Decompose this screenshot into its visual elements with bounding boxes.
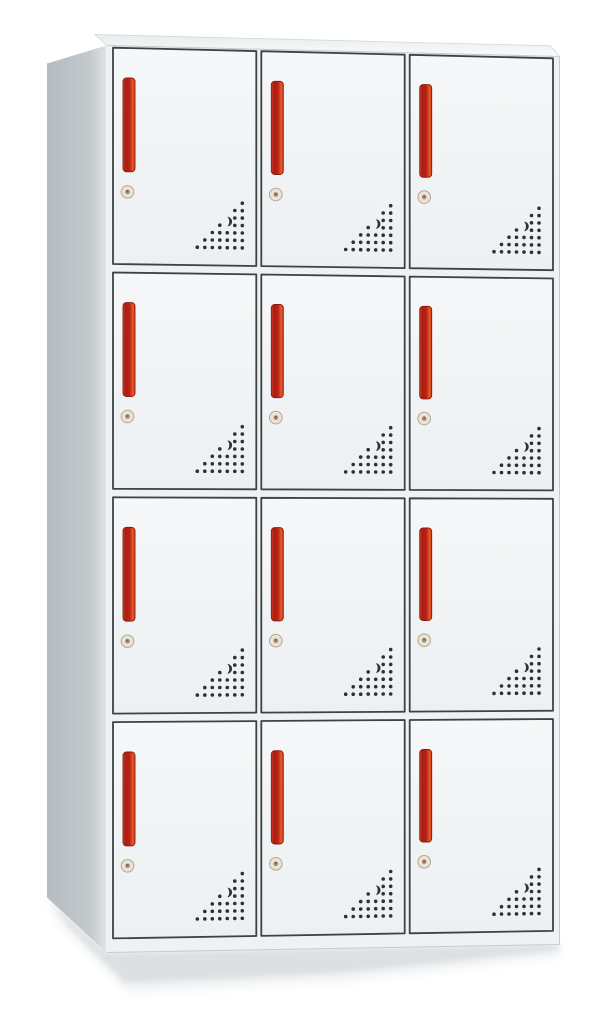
vent-hole (507, 692, 511, 696)
door-handle (271, 528, 283, 621)
vent-hole (381, 907, 385, 911)
vent-hole (389, 204, 393, 208)
door-handle (420, 528, 432, 621)
vent-hole (203, 246, 207, 250)
vent-hole (515, 905, 519, 909)
vent-hole (211, 231, 215, 235)
vent-hole (389, 211, 393, 215)
lock-dot (127, 864, 129, 866)
vent-hole (241, 447, 245, 451)
locker-door-r2c3 (410, 277, 553, 491)
vent-hole (366, 915, 370, 919)
vent-hole (381, 877, 385, 881)
vent-hole (241, 201, 245, 205)
vent-hole (233, 209, 237, 213)
vent-hole (241, 648, 245, 652)
vent-hole (233, 239, 237, 243)
locker-door-r3c1 (113, 497, 256, 713)
vent-hole (530, 662, 534, 666)
locker-cabinet (0, 0, 605, 1009)
door-handle (271, 751, 283, 844)
vent-hole (241, 209, 245, 213)
vent-hole (515, 684, 519, 688)
vent-hole (522, 243, 526, 247)
vent-hole (381, 248, 385, 252)
vent-hole (233, 678, 237, 682)
vent-hole (196, 917, 200, 921)
vent-hole (530, 691, 534, 695)
vent-hole (530, 905, 534, 909)
vent-hole (233, 447, 237, 451)
vent-hole (492, 250, 496, 254)
vent-hole (381, 448, 385, 452)
vent-hole (389, 685, 393, 689)
vent-hole (226, 238, 230, 242)
vent-hole (381, 914, 385, 918)
vent-hole (530, 897, 534, 901)
vent-hole (389, 226, 393, 230)
vent-hole (211, 678, 215, 682)
vent-hole (241, 671, 245, 675)
vent-hole (507, 471, 511, 475)
vent-hole (530, 684, 534, 688)
locker-door-r4c2 (261, 720, 404, 936)
lock-dot (423, 860, 425, 862)
vent-hole (381, 211, 385, 215)
vent-hole (233, 455, 237, 459)
door-handle (271, 304, 283, 397)
vent-hole (241, 872, 245, 876)
vent-hole (233, 917, 237, 921)
vent-hole (226, 686, 230, 690)
vent-hole (381, 670, 385, 674)
vent-hole (530, 434, 534, 438)
vent-hole (366, 463, 370, 467)
vent-hole (515, 897, 519, 901)
vent-hole (218, 238, 222, 242)
vent-hole (381, 892, 385, 896)
vent-hole (233, 224, 237, 228)
vent-hole (537, 464, 541, 468)
vent-hole (374, 248, 378, 252)
locker-door-r4c1 (113, 721, 256, 938)
vent-hole (522, 677, 526, 681)
vent-hole (359, 463, 363, 467)
vent-hole (359, 248, 363, 252)
vent-hole (218, 671, 222, 675)
cabinet-side-panel (47, 46, 107, 953)
vent-hole (389, 470, 393, 474)
vent-hole (515, 449, 519, 453)
vent-hole (211, 469, 215, 473)
vent-hole (389, 441, 393, 445)
vent-hole (530, 214, 534, 218)
door-handle (271, 81, 283, 174)
vent-hole (507, 677, 511, 681)
vent-hole (537, 449, 541, 453)
lock-dot (127, 415, 129, 417)
vent-hole (366, 455, 370, 459)
vent-hole (537, 684, 541, 688)
vent-hole (500, 243, 504, 247)
vent-hole (218, 902, 222, 906)
vent-hole (515, 243, 519, 247)
door-lock (418, 856, 431, 869)
vent-hole (359, 907, 363, 911)
vent-hole (522, 464, 526, 468)
vent-hole (196, 693, 200, 697)
vent-hole (374, 914, 378, 918)
vent-hole (218, 470, 222, 474)
vent-hole (389, 234, 393, 238)
vent-hole (381, 233, 385, 237)
vent-hole (389, 426, 393, 430)
vent-hole (537, 471, 541, 475)
vent-hole (530, 875, 534, 879)
vent-hole (203, 462, 207, 466)
vent-hole (389, 692, 393, 696)
vent-hole (515, 456, 519, 460)
lock-dot (275, 193, 277, 195)
locker-door-r4c3 (410, 719, 553, 933)
vent-hole (241, 224, 245, 228)
vent-hole (515, 464, 519, 468)
vent-hole (522, 897, 526, 901)
vent-hole (522, 471, 526, 475)
vent-hole (389, 877, 393, 881)
vent-hole (389, 907, 393, 911)
vent-hole (226, 909, 230, 913)
vent-hole (389, 677, 393, 681)
vent-hole (203, 238, 207, 242)
vent-hole (359, 233, 363, 237)
door-handle (123, 527, 135, 621)
vent-hole (211, 455, 215, 459)
vent-hole (366, 692, 370, 696)
vent-hole (515, 677, 519, 681)
door-handle (123, 752, 135, 846)
vent-hole (366, 233, 370, 237)
vent-hole (537, 236, 541, 240)
vent-hole (537, 442, 541, 446)
vent-hole (226, 231, 230, 235)
vent-hole (530, 442, 534, 446)
vent-hole (515, 250, 519, 254)
vent-hole (218, 223, 222, 227)
vent-hole (241, 425, 245, 429)
vent-hole (203, 693, 207, 697)
vent-hole (530, 669, 534, 673)
vent-hole (515, 692, 519, 696)
vent-hole (389, 655, 393, 659)
vent-hole (344, 915, 348, 919)
vent-hole (218, 693, 222, 697)
vent-hole (374, 900, 378, 904)
vent-hole (537, 868, 541, 872)
vent-hole (218, 678, 222, 682)
vent-hole (241, 887, 245, 891)
vent-hole (530, 655, 534, 659)
vent-hole (381, 441, 385, 445)
vent-hole (366, 670, 370, 674)
vent-hole (530, 456, 534, 460)
vent-hole (233, 879, 237, 883)
vent-hole (203, 917, 207, 921)
vent-hole (241, 470, 245, 474)
vent-hole (233, 656, 237, 660)
vent-hole (366, 892, 370, 896)
door-lock (121, 860, 134, 873)
vent-hole (515, 228, 519, 232)
vent-hole (241, 462, 245, 466)
vent-hole (500, 463, 504, 467)
vent-hole (374, 470, 378, 474)
vent-hole (218, 246, 222, 250)
vent-hole (218, 231, 222, 235)
vent-hole (389, 219, 393, 223)
vent-hole (233, 894, 237, 898)
vent-hole (530, 449, 534, 453)
vent-hole (359, 915, 363, 919)
vent-hole (507, 456, 511, 460)
vent-hole (241, 693, 245, 697)
vent-hole (389, 241, 393, 245)
vent-hole (381, 455, 385, 459)
vent-hole (233, 470, 237, 474)
vent-hole (381, 470, 385, 474)
vent-hole (351, 907, 355, 911)
vent-hole (226, 470, 230, 474)
vent-hole (530, 890, 534, 894)
vent-hole (507, 905, 511, 909)
vent-hole (226, 462, 230, 466)
vent-hole (522, 684, 526, 688)
vent-hole (218, 462, 222, 466)
vent-hole (203, 910, 207, 914)
vent-hole (515, 912, 519, 916)
door-lock (418, 191, 431, 204)
vent-hole (507, 250, 511, 254)
door-lock (270, 858, 283, 871)
vent-hole (233, 432, 237, 436)
door-handle (123, 78, 135, 172)
vent-hole (211, 246, 215, 250)
vent-hole (537, 456, 541, 460)
vent-hole (537, 427, 541, 431)
vent-hole (537, 655, 541, 659)
vent-hole (196, 469, 200, 473)
vent-hole (537, 251, 541, 255)
vent-hole (500, 905, 504, 909)
locker-door-r2c2 (261, 275, 404, 490)
vent-hole (233, 686, 237, 690)
vent-hole (537, 882, 541, 886)
vent-hole (211, 462, 215, 466)
vent-hole (381, 677, 385, 681)
vent-hole (233, 216, 237, 220)
door-lock (121, 186, 134, 199)
vent-hole (226, 917, 230, 921)
vent-hole (241, 686, 245, 690)
vent-hole (515, 890, 519, 894)
vent-hole (522, 236, 526, 240)
vent-hole (374, 233, 378, 237)
vent-hole (241, 663, 245, 667)
vent-hole (241, 246, 245, 250)
vent-hole (381, 463, 385, 467)
locker-door-r3c3 (410, 498, 553, 711)
locker-product-photo (0, 0, 605, 1009)
vent-hole (233, 887, 237, 891)
vent-hole (241, 678, 245, 682)
vent-hole (507, 463, 511, 467)
vent-hole (389, 870, 393, 874)
door-lock (121, 635, 134, 648)
vent-hole (522, 250, 526, 254)
vent-hole (241, 902, 245, 906)
vent-hole (515, 669, 519, 673)
vent-hole (233, 693, 237, 697)
vent-hole (381, 899, 385, 903)
vent-hole (359, 692, 363, 696)
lock-dot (127, 639, 129, 641)
vent-hole (226, 693, 230, 697)
vent-hole (211, 902, 215, 906)
vent-hole (351, 470, 355, 474)
vent-hole (233, 440, 237, 444)
vent-hole (218, 917, 222, 921)
vent-hole (366, 248, 370, 252)
vent-hole (241, 909, 245, 913)
vent-hole (366, 900, 370, 904)
vent-hole (211, 686, 215, 690)
vent-hole (381, 885, 385, 889)
vent-hole (500, 692, 504, 696)
vent-hole (374, 678, 378, 682)
vent-hole (530, 912, 534, 916)
vent-hole (211, 238, 215, 242)
vent-hole (233, 902, 237, 906)
vent-hole (344, 692, 348, 696)
vent-hole (211, 910, 215, 914)
vent-hole (537, 875, 541, 879)
vent-hole (241, 231, 245, 235)
vent-hole (366, 226, 370, 230)
locker-door-r1c2 (261, 51, 404, 268)
door-lock (270, 188, 283, 201)
vent-hole (218, 895, 222, 899)
vent-hole (241, 216, 245, 220)
vent-hole (389, 648, 393, 652)
vent-hole (233, 671, 237, 675)
vent-hole (366, 448, 370, 452)
vent-hole (530, 677, 534, 681)
vent-hole (233, 246, 237, 250)
vent-hole (507, 684, 511, 688)
vent-hole (374, 463, 378, 467)
vent-hole (366, 907, 370, 911)
vent-hole (359, 678, 363, 682)
vent-hole (537, 912, 541, 916)
vent-hole (537, 691, 541, 695)
vent-hole (522, 912, 526, 916)
door-handle (420, 306, 432, 399)
vent-hole (537, 229, 541, 233)
vent-hole (500, 471, 504, 475)
locker-door-r1c1 (113, 48, 256, 266)
vent-hole (359, 900, 363, 904)
vent-hole (226, 902, 230, 906)
vent-hole (374, 692, 378, 696)
vent-hole (218, 455, 222, 459)
vent-hole (381, 433, 385, 437)
vent-hole (359, 455, 363, 459)
vent-hole (389, 892, 393, 896)
vent-hole (537, 904, 541, 908)
vent-hole (530, 243, 534, 247)
vent-hole (344, 470, 348, 474)
vent-hole (226, 455, 230, 459)
vent-hole (226, 246, 230, 250)
vent-hole (241, 440, 245, 444)
vent-hole (389, 914, 393, 918)
lock-dot (127, 190, 129, 192)
vent-hole (351, 915, 355, 919)
vent-hole (507, 235, 511, 239)
vent-hole (211, 917, 215, 921)
vent-hole (507, 898, 511, 902)
vent-hole (381, 692, 385, 696)
vent-hole (351, 240, 355, 244)
vent-hole (500, 912, 504, 916)
vent-hole (492, 471, 496, 475)
vent-hole (366, 241, 370, 245)
vent-hole (507, 912, 511, 916)
vent-hole (381, 226, 385, 230)
vent-hole (241, 879, 245, 883)
vent-hole (389, 899, 393, 903)
vent-hole (203, 686, 207, 690)
vent-hole (537, 677, 541, 681)
vent-hole (507, 243, 511, 247)
door-handle (420, 750, 432, 843)
vent-hole (389, 248, 393, 252)
vent-hole (537, 890, 541, 894)
vent-hole (389, 433, 393, 437)
vent-hole (389, 463, 393, 467)
door-lock (270, 634, 283, 647)
vent-hole (359, 241, 363, 245)
vent-hole (366, 678, 370, 682)
vent-hole (537, 647, 541, 651)
door-handle (123, 303, 135, 397)
vent-hole (530, 471, 534, 475)
vent-hole (522, 456, 526, 460)
vent-hole (218, 686, 222, 690)
vent-hole (381, 219, 385, 223)
vent-hole (218, 909, 222, 913)
vent-hole (500, 250, 504, 254)
vent-hole (374, 685, 378, 689)
vent-hole (359, 685, 363, 689)
locker-door-r2c1 (113, 273, 256, 490)
vent-hole (196, 245, 200, 249)
vent-hole (537, 207, 541, 211)
vent-hole (500, 684, 504, 688)
vent-hole (351, 463, 355, 467)
locker-door-r1c3 (410, 55, 553, 270)
vent-hole (530, 882, 534, 886)
